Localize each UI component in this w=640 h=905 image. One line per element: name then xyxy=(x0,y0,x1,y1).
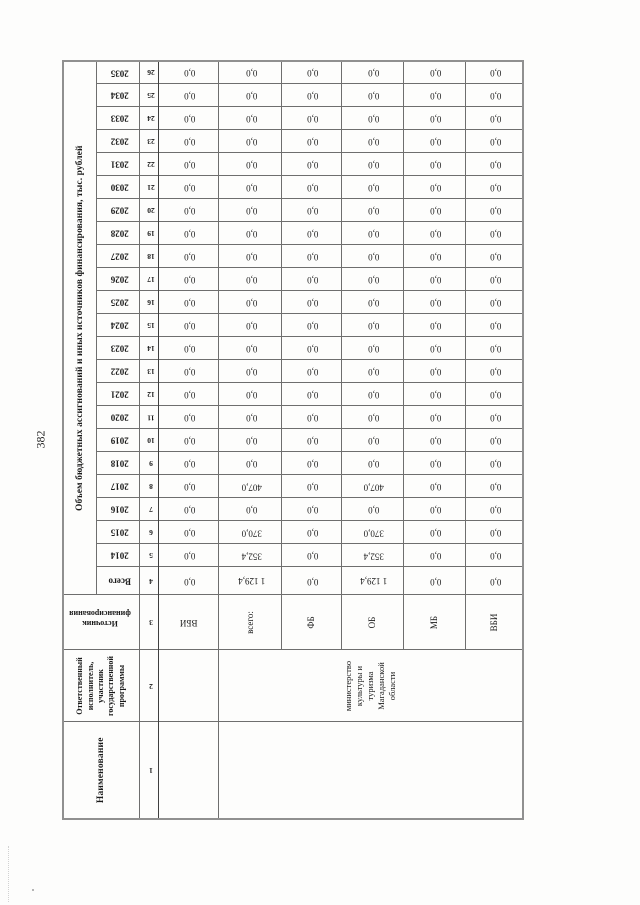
value-cell: 0,0 xyxy=(158,245,218,268)
value-cell: 0,0 xyxy=(341,314,403,337)
value-cell-text: 0,0 xyxy=(430,229,441,238)
value-cell-text: 0,0 xyxy=(430,436,441,445)
value-cell: 0,0 xyxy=(465,245,523,268)
value-cell-text: 0,0 xyxy=(246,160,257,169)
value-cell-text: 0,0 xyxy=(184,390,195,399)
col-number-cell: 14 xyxy=(139,337,158,360)
value-cell: 0,0 xyxy=(281,452,341,475)
value-cell: 0,0 xyxy=(218,130,281,153)
value-cell: 0,0 xyxy=(281,84,341,107)
value-cell-text: 0,0 xyxy=(307,482,318,491)
col-number-cell-text: 23 xyxy=(147,138,155,146)
value-cell-text: 0,0 xyxy=(307,298,318,307)
value-cell: 0,0 xyxy=(158,498,218,521)
value-cell: 0,0 xyxy=(403,521,465,544)
value-cell: 0,0 xyxy=(465,61,523,84)
value-cell-text: 0,0 xyxy=(368,206,379,215)
value-cell-text: 0,0 xyxy=(430,114,441,123)
value-cell: 0,0 xyxy=(465,291,523,314)
col-number-cell: 1 xyxy=(139,722,158,819)
value-cell-text: 0,0 xyxy=(368,68,379,77)
value-cell: 0,0 xyxy=(218,84,281,107)
value-cell: 0,0 xyxy=(218,383,281,406)
value-cell-text: 0,0 xyxy=(307,160,318,169)
year-header-cell: 2028 xyxy=(96,222,139,245)
value-cell-text: 0,0 xyxy=(307,114,318,123)
year-header-cell: 2024 xyxy=(96,314,139,337)
total-cell: 0,0 xyxy=(465,567,523,595)
value-cell-text: 0,0 xyxy=(430,137,441,146)
col3-header: Источник финансирования xyxy=(63,595,139,650)
year-header-cell-text: 2029 xyxy=(110,206,128,215)
value-cell: 0,0 xyxy=(218,153,281,176)
col-number-cell-text: 16 xyxy=(147,299,155,307)
value-cell: 0,0 xyxy=(465,521,523,544)
value-cell: 0,0 xyxy=(403,61,465,84)
total-cell: 1 129,4 xyxy=(218,567,281,595)
value-cell-text: 0,0 xyxy=(246,413,257,422)
value-cell-text: 370,0 xyxy=(241,528,261,537)
year-header-cell: 2021 xyxy=(96,383,139,406)
year-header-cell: 2029 xyxy=(96,199,139,222)
value-cell-text: 0,0 xyxy=(246,459,257,468)
year-header-cell: 2016 xyxy=(96,498,139,521)
value-cell: 0,0 xyxy=(218,176,281,199)
value-cell: 0,0 xyxy=(403,452,465,475)
col-number-cell-text: 3 xyxy=(149,619,153,627)
value-cell-text: 0,0 xyxy=(430,68,441,77)
value-cell: 0,0 xyxy=(281,498,341,521)
value-cell: 0,0 xyxy=(341,245,403,268)
col-number-cell-text: 13 xyxy=(147,368,155,376)
col-number-cell-text: 9 xyxy=(149,460,153,468)
value-cell-text: 0,0 xyxy=(246,206,257,215)
value-cell: 0,0 xyxy=(158,406,218,429)
value-cell: 407,0 xyxy=(341,475,403,498)
value-cell-text: 0,0 xyxy=(184,459,195,468)
col-number-cell-text: 12 xyxy=(147,391,155,399)
value-cell-text: 0,0 xyxy=(490,68,501,77)
value-cell: 0,0 xyxy=(465,153,523,176)
col-number-cell: 26 xyxy=(139,61,158,84)
value-cell: 0,0 xyxy=(281,314,341,337)
value-cell: 0,0 xyxy=(158,130,218,153)
value-cell: 0,0 xyxy=(218,245,281,268)
year-header-cell-text: 2032 xyxy=(110,137,128,146)
value-cell: 0,0 xyxy=(465,176,523,199)
value-cell: 0,0 xyxy=(158,314,218,337)
year-header-cell-text: 2015 xyxy=(110,528,128,537)
value-cell: 0,0 xyxy=(281,61,341,84)
value-cell-text: 0,0 xyxy=(430,206,441,215)
value-cell-text: 0,0 xyxy=(490,390,501,399)
value-cell: 0,0 xyxy=(281,521,341,544)
value-cell: 0,0 xyxy=(281,268,341,291)
value-cell: 0,0 xyxy=(158,176,218,199)
value-cell-text: 0,0 xyxy=(246,252,257,261)
executor-cell: министерство культуры и туризма Магаданс… xyxy=(218,650,523,722)
value-cell: 0,0 xyxy=(158,452,218,475)
col-number-cell-text: 18 xyxy=(147,253,155,261)
year-header-cell: 2030 xyxy=(96,176,139,199)
col-number-cell-text: 7 xyxy=(149,506,153,514)
value-cell: 0,0 xyxy=(218,199,281,222)
total-cell-text: 0,0 xyxy=(184,576,195,585)
value-cell: 0,0 xyxy=(158,268,218,291)
value-cell-text: 0,0 xyxy=(184,321,195,330)
year-header-cell-text: 2021 xyxy=(110,390,128,399)
total-cell-text: 0,0 xyxy=(307,576,318,585)
value-cell-text: 0,0 xyxy=(490,206,501,215)
value-cell: 0,0 xyxy=(281,176,341,199)
year-header-cell: 2015 xyxy=(96,521,139,544)
value-cell-text: 0,0 xyxy=(490,528,501,537)
value-cell: 0,0 xyxy=(281,360,341,383)
value-cell-text: 0,0 xyxy=(490,114,501,123)
value-cell-text: 0,0 xyxy=(430,321,441,330)
value-cell-text: 0,0 xyxy=(246,91,257,100)
total-header-text: Всего xyxy=(108,576,130,585)
value-cell: 0,0 xyxy=(465,429,523,452)
scan-speck xyxy=(32,889,34,891)
value-cell: 0,0 xyxy=(403,84,465,107)
year-header-cell-text: 2018 xyxy=(110,459,128,468)
col-number-cell: 25 xyxy=(139,84,158,107)
year-header-cell-text: 2014 xyxy=(110,551,128,560)
value-cell: 0,0 xyxy=(158,84,218,107)
value-cell-text: 0,0 xyxy=(246,321,257,330)
source-cell: ФБ xyxy=(281,595,341,650)
value-cell-text: 0,0 xyxy=(307,91,318,100)
year-header-cell: 2031 xyxy=(96,153,139,176)
value-cell: 0,0 xyxy=(158,61,218,84)
value-cell: 0,0 xyxy=(158,337,218,360)
year-header-cell-text: 2035 xyxy=(110,68,128,77)
col1-header: Наименование xyxy=(63,722,139,819)
value-cell: 0,0 xyxy=(218,498,281,521)
year-header-cell-text: 2016 xyxy=(110,505,128,514)
value-cell: 0,0 xyxy=(281,544,341,567)
value-cell-text: 0,0 xyxy=(490,551,501,560)
value-cell: 352,4 xyxy=(341,544,403,567)
col-number-cell-text: 26 xyxy=(147,69,155,77)
value-cell: 0,0 xyxy=(218,222,281,245)
value-cell: 0,0 xyxy=(465,268,523,291)
value-cell-text: 0,0 xyxy=(307,321,318,330)
value-cell-text: 0,0 xyxy=(430,160,441,169)
value-cell-text: 0,0 xyxy=(307,436,318,445)
value-cell: 0,0 xyxy=(465,475,523,498)
value-cell-text: 407,0 xyxy=(241,482,261,491)
value-cell-text: 0,0 xyxy=(490,137,501,146)
value-cell-text: 0,0 xyxy=(184,68,195,77)
value-cell: 0,0 xyxy=(281,406,341,429)
year-header-cell-text: 2023 xyxy=(110,344,128,353)
value-cell: 0,0 xyxy=(341,130,403,153)
year-header-cell-text: 2027 xyxy=(110,252,128,261)
value-cell-text: 0,0 xyxy=(490,298,501,307)
year-header-cell-text: 2022 xyxy=(110,367,128,376)
value-cell: 0,0 xyxy=(281,130,341,153)
col-number-cell: 23 xyxy=(139,130,158,153)
col-number-cell: 22 xyxy=(139,153,158,176)
year-header-cell: 2027 xyxy=(96,245,139,268)
year-header-cell: 2022 xyxy=(96,360,139,383)
value-cell: 0,0 xyxy=(465,498,523,521)
year-header-cell: 2033 xyxy=(96,107,139,130)
value-cell: 0,0 xyxy=(403,199,465,222)
value-cell-text: 0,0 xyxy=(368,91,379,100)
value-cell-text: 0,0 xyxy=(490,436,501,445)
value-cell: 0,0 xyxy=(281,153,341,176)
value-cell: 0,0 xyxy=(403,176,465,199)
col-number-cell-text: 15 xyxy=(147,322,155,330)
value-cell-text: 0,0 xyxy=(368,505,379,514)
col-number-cell: 15 xyxy=(139,314,158,337)
col-number-cell-text: 1 xyxy=(149,766,153,774)
value-cell: 0,0 xyxy=(341,153,403,176)
value-cell-text: 0,0 xyxy=(368,252,379,261)
value-cell-text: 0,0 xyxy=(490,482,501,491)
year-header-cell: 2017 xyxy=(96,475,139,498)
value-cell: 0,0 xyxy=(403,130,465,153)
value-cell: 0,0 xyxy=(341,61,403,84)
value-cell-text: 0,0 xyxy=(184,551,195,560)
value-cell-text: 0,0 xyxy=(430,390,441,399)
value-cell-text: 0,0 xyxy=(246,436,257,445)
value-cell: 0,0 xyxy=(158,475,218,498)
source-cell: ОБ xyxy=(341,595,403,650)
value-cell: 0,0 xyxy=(465,383,523,406)
col-number-cell: 4 xyxy=(139,567,158,595)
value-cell: 0,0 xyxy=(341,222,403,245)
value-cell-text: 0,0 xyxy=(368,137,379,146)
value-cell-text: 0,0 xyxy=(368,344,379,353)
value-cell-text: 0,0 xyxy=(368,390,379,399)
value-cell-text: 0,0 xyxy=(368,413,379,422)
col-number-cell: 7 xyxy=(139,498,158,521)
year-header-cell-text: 2025 xyxy=(110,298,128,307)
value-cell-text: 0,0 xyxy=(430,413,441,422)
value-cell-text: 0,0 xyxy=(184,482,195,491)
col3-header-text: Источник финансирования xyxy=(69,609,131,629)
value-cell: 0,0 xyxy=(218,406,281,429)
value-cell: 0,0 xyxy=(218,291,281,314)
value-cell-text: 0,0 xyxy=(246,367,257,376)
scan-artifact-line xyxy=(8,846,9,902)
total-cell-text: 1 129,4 xyxy=(360,576,387,585)
value-cell: 0,0 xyxy=(218,268,281,291)
value-cell-text: 0,0 xyxy=(368,367,379,376)
value-cell-text: 0,0 xyxy=(490,229,501,238)
col-number-cell: 10 xyxy=(139,429,158,452)
value-cell-text: 0,0 xyxy=(246,183,257,192)
year-header-cell-text: 2026 xyxy=(110,275,128,284)
col-number-cell: 19 xyxy=(139,222,158,245)
value-cell-text: 0,0 xyxy=(307,344,318,353)
col-number-cell: 5 xyxy=(139,544,158,567)
value-cell-text: 0,0 xyxy=(490,252,501,261)
table-rotator: НаименованиеОтветственный исполнитель, у… xyxy=(62,62,520,820)
source-cell: ВБИ xyxy=(158,595,218,650)
value-cell-text: 0,0 xyxy=(430,528,441,537)
value-cell: 0,0 xyxy=(403,544,465,567)
value-cell-text: 0,0 xyxy=(307,367,318,376)
value-cell-text: 0,0 xyxy=(307,413,318,422)
value-cell-text: 0,0 xyxy=(430,344,441,353)
value-cell: 0,0 xyxy=(341,84,403,107)
value-cell-text: 0,0 xyxy=(430,275,441,284)
value-cell: 370,0 xyxy=(218,521,281,544)
value-cell-text: 0,0 xyxy=(246,390,257,399)
col-number-cell-text: 17 xyxy=(147,276,155,284)
value-cell-text: 0,0 xyxy=(184,367,195,376)
col-number-cell: 2 xyxy=(139,650,158,722)
value-cell: 0,0 xyxy=(403,268,465,291)
value-cell: 0,0 xyxy=(403,475,465,498)
value-cell-text: 0,0 xyxy=(307,275,318,284)
value-cell: 0,0 xyxy=(158,199,218,222)
value-cell: 0,0 xyxy=(465,107,523,130)
value-cell: 0,0 xyxy=(465,544,523,567)
total-cell-text: 1 129,4 xyxy=(238,576,265,585)
value-cell: 0,0 xyxy=(403,107,465,130)
value-cell: 0,0 xyxy=(281,475,341,498)
value-cell-text: 0,0 xyxy=(246,229,257,238)
value-cell-text: 0,0 xyxy=(430,367,441,376)
value-cell: 0,0 xyxy=(403,153,465,176)
page-number: 382 xyxy=(34,425,49,455)
value-cell-text: 0,0 xyxy=(246,344,257,353)
value-cell: 0,0 xyxy=(281,107,341,130)
value-cell: 0,0 xyxy=(465,360,523,383)
value-cell: 0,0 xyxy=(158,222,218,245)
year-header-cell: 2019 xyxy=(96,429,139,452)
value-cell: 0,0 xyxy=(218,360,281,383)
value-cell-text: 0,0 xyxy=(490,413,501,422)
value-cell: 0,0 xyxy=(403,291,465,314)
value-cell-text: 0,0 xyxy=(307,551,318,560)
value-cell: 0,0 xyxy=(218,314,281,337)
value-cell-text: 0,0 xyxy=(490,505,501,514)
value-cell-text: 0,0 xyxy=(307,505,318,514)
value-cell-text: 0,0 xyxy=(184,528,195,537)
year-header-cell-text: 2028 xyxy=(110,229,128,238)
year-header-cell-text: 2031 xyxy=(110,160,128,169)
value-cell-text: 0,0 xyxy=(490,183,501,192)
value-cell: 0,0 xyxy=(218,61,281,84)
value-cell: 0,0 xyxy=(465,199,523,222)
value-cell-text: 352,4 xyxy=(241,551,261,560)
value-cell: 0,0 xyxy=(403,245,465,268)
col2-header: Ответственный исполнитель, участник госу… xyxy=(63,650,139,722)
value-cell-text: 0,0 xyxy=(490,91,501,100)
value-cell-text: 0,0 xyxy=(246,505,257,514)
value-cell-text: 0,0 xyxy=(184,91,195,100)
col-number-cell-text: 8 xyxy=(149,483,153,491)
value-cell: 0,0 xyxy=(465,130,523,153)
year-header-cell-text: 2020 xyxy=(110,413,128,422)
executor-cell xyxy=(158,650,218,722)
value-cell-text: 0,0 xyxy=(490,459,501,468)
col-number-cell-text: 6 xyxy=(149,529,153,537)
value-cell: 0,0 xyxy=(341,360,403,383)
value-cell: 0,0 xyxy=(403,383,465,406)
total-cell: 1 129,4 xyxy=(341,567,403,595)
name-cell xyxy=(218,722,523,819)
col-number-cell: 17 xyxy=(139,268,158,291)
value-cell: 0,0 xyxy=(341,406,403,429)
value-cell: 0,0 xyxy=(281,199,341,222)
value-cell: 0,0 xyxy=(341,498,403,521)
col-number-cell: 12 xyxy=(139,383,158,406)
value-cell: 0,0 xyxy=(218,337,281,360)
value-cell: 0,0 xyxy=(158,521,218,544)
scanned-page: 382 НаименованиеОтветственный исполнител… xyxy=(0,0,640,905)
value-cell-text: 0,0 xyxy=(184,160,195,169)
col-number-cell: 3 xyxy=(139,595,158,650)
value-cell: 0,0 xyxy=(465,314,523,337)
value-cell: 0,0 xyxy=(281,245,341,268)
value-cell-text: 0,0 xyxy=(490,367,501,376)
value-cell-text: 0,0 xyxy=(430,183,441,192)
col-number-cell-text: 14 xyxy=(147,345,155,353)
value-cell: 0,0 xyxy=(218,429,281,452)
value-cell: 0,0 xyxy=(341,291,403,314)
value-cell-text: 0,0 xyxy=(430,505,441,514)
value-cell-text: 0,0 xyxy=(246,137,257,146)
value-cell: 0,0 xyxy=(341,337,403,360)
year-header-cell-text: 2019 xyxy=(110,436,128,445)
value-cell: 0,0 xyxy=(158,291,218,314)
year-header-cell-text: 2033 xyxy=(110,114,128,123)
value-cell: 0,0 xyxy=(341,383,403,406)
value-cell: 0,0 xyxy=(465,452,523,475)
col-number-cell: 8 xyxy=(139,475,158,498)
amount-span-header: Объем бюджетных ассигнований и иных исто… xyxy=(63,61,96,595)
value-cell: 0,0 xyxy=(465,337,523,360)
value-cell-text: 0,0 xyxy=(184,183,195,192)
value-cell: 0,0 xyxy=(403,314,465,337)
value-cell-text: 0,0 xyxy=(184,298,195,307)
value-cell-text: 352,4 xyxy=(364,551,384,560)
value-cell-text: 0,0 xyxy=(368,321,379,330)
year-header-cell: 2025 xyxy=(96,291,139,314)
value-cell: 0,0 xyxy=(158,383,218,406)
value-cell-text: 0,0 xyxy=(307,528,318,537)
value-cell-text: 0,0 xyxy=(307,183,318,192)
value-cell: 0,0 xyxy=(218,107,281,130)
value-cell: 0,0 xyxy=(158,429,218,452)
budget-table: НаименованиеОтветственный исполнитель, у… xyxy=(62,60,524,820)
value-cell-text: 0,0 xyxy=(184,344,195,353)
value-cell-text: 0,0 xyxy=(430,91,441,100)
value-cell: 0,0 xyxy=(341,429,403,452)
value-cell-text: 0,0 xyxy=(184,436,195,445)
col-number-cell: 24 xyxy=(139,107,158,130)
total-cell: 0,0 xyxy=(281,567,341,595)
value-cell: 0,0 xyxy=(281,383,341,406)
col-number-cell-text: 22 xyxy=(147,161,155,169)
value-cell: 0,0 xyxy=(465,406,523,429)
col-number-cell-text: 24 xyxy=(147,115,155,123)
col-number-cell: 20 xyxy=(139,199,158,222)
value-cell-text: 0,0 xyxy=(368,114,379,123)
col-number-cell: 13 xyxy=(139,360,158,383)
value-cell: 0,0 xyxy=(281,291,341,314)
value-cell-text: 0,0 xyxy=(368,459,379,468)
source-cell: МБ xyxy=(403,595,465,650)
